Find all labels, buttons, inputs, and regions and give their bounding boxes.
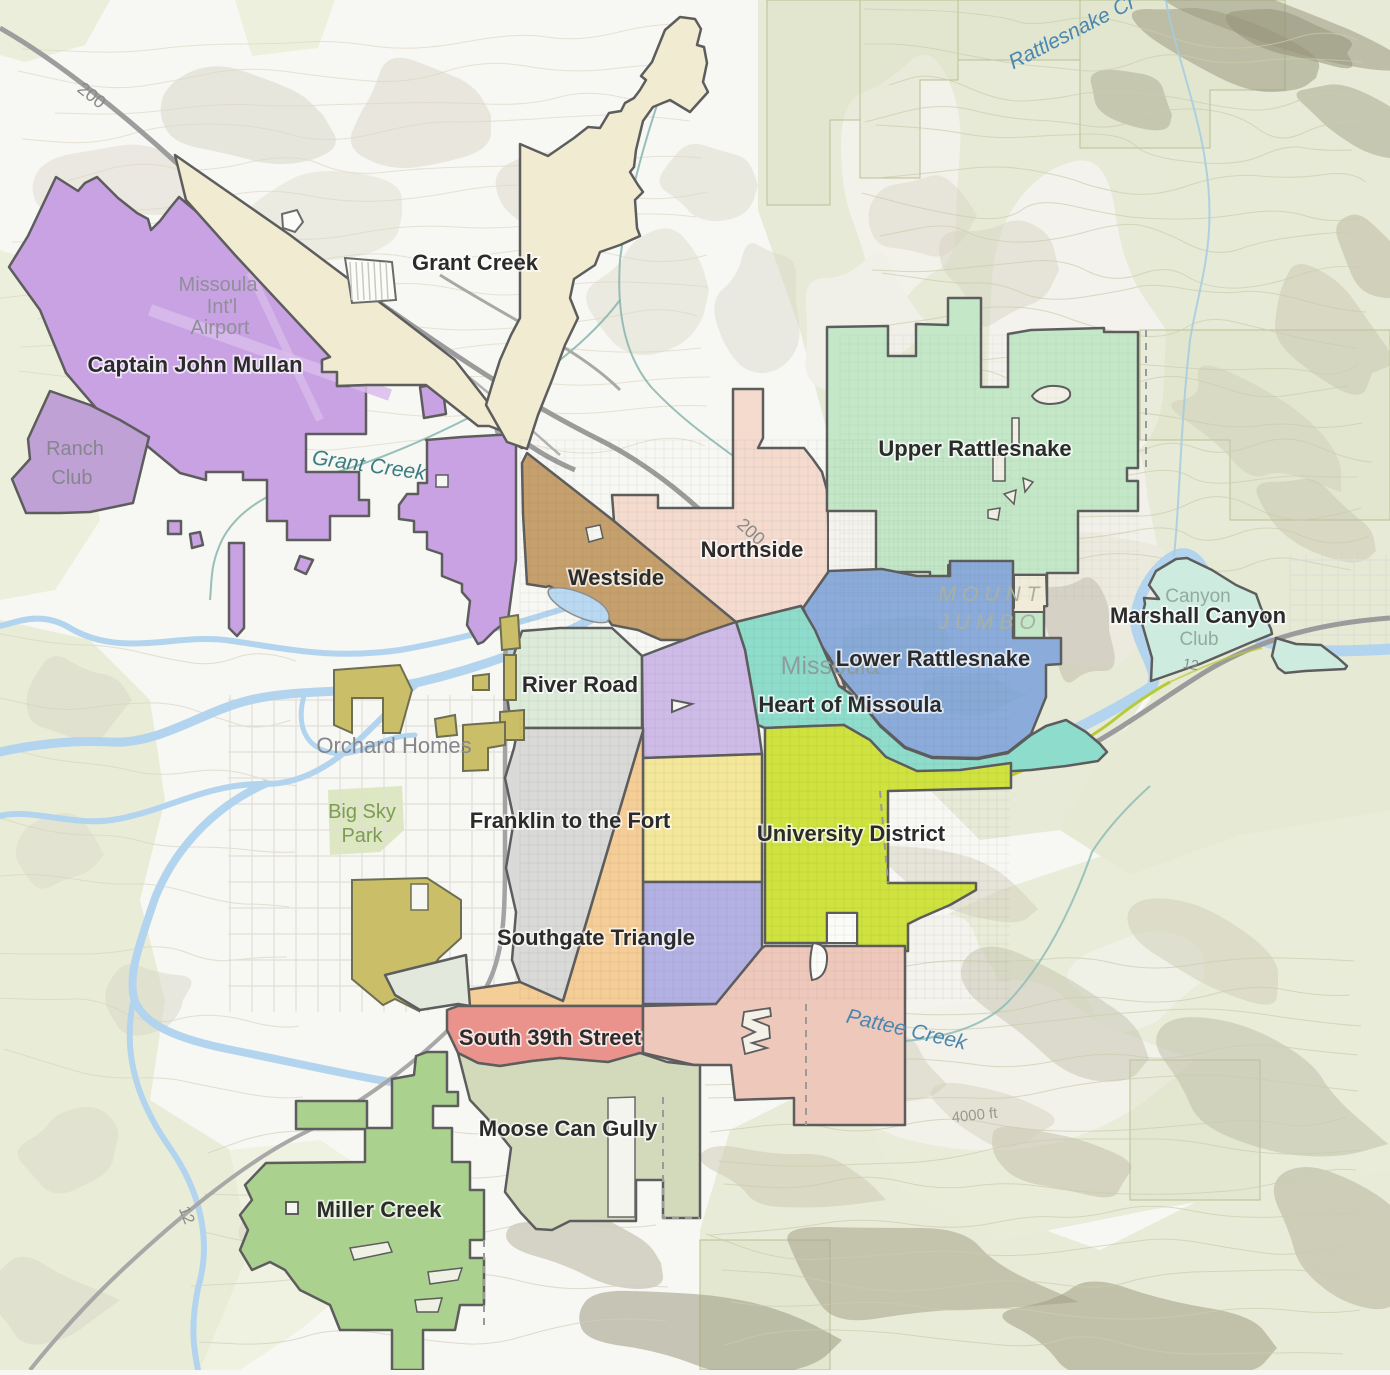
svg-text:Moose Can Gully: Moose Can Gully — [479, 1116, 658, 1141]
svg-text:Northside: Northside — [701, 537, 804, 562]
svg-text:12: 12 — [1182, 655, 1200, 673]
svg-text:Lower Rattlesnake: Lower Rattlesnake — [836, 646, 1030, 671]
svg-text:Missoula: Missoula — [179, 274, 259, 296]
svg-text:Club: Club — [51, 467, 92, 489]
svg-text:Franklin to the Fort: Franklin to the Fort — [470, 808, 671, 833]
svg-text:Park: Park — [341, 825, 383, 847]
svg-text:Miller Creek: Miller Creek — [317, 1197, 442, 1222]
svg-text:Grant Creek: Grant Creek — [412, 250, 539, 275]
svg-text:JUMBO: JUMBO — [937, 611, 1042, 634]
svg-text:Captain John Mullan: Captain John Mullan — [87, 352, 302, 377]
svg-text:Int'l: Int'l — [207, 296, 238, 318]
svg-text:Marshall Canyon: Marshall Canyon — [1110, 603, 1286, 628]
svg-text:Southgate Triangle: Southgate Triangle — [497, 925, 695, 950]
svg-text:River Road: River Road — [522, 672, 638, 697]
svg-text:Heart of Missoula: Heart of Missoula — [758, 692, 942, 717]
svg-text:Club: Club — [1179, 629, 1218, 650]
svg-text:Westside: Westside — [568, 565, 664, 590]
svg-text:South 39th Street: South 39th Street — [459, 1025, 642, 1050]
svg-text:Airport: Airport — [191, 317, 250, 339]
svg-text:MOUNT: MOUNT — [939, 583, 1046, 606]
svg-text:Ranch: Ranch — [46, 438, 104, 460]
svg-text:Orchard Homes: Orchard Homes — [316, 733, 471, 758]
svg-text:Big Sky: Big Sky — [328, 801, 396, 823]
svg-text:Upper Rattlesnake: Upper Rattlesnake — [878, 436, 1071, 461]
svg-text:University District: University District — [757, 821, 946, 846]
